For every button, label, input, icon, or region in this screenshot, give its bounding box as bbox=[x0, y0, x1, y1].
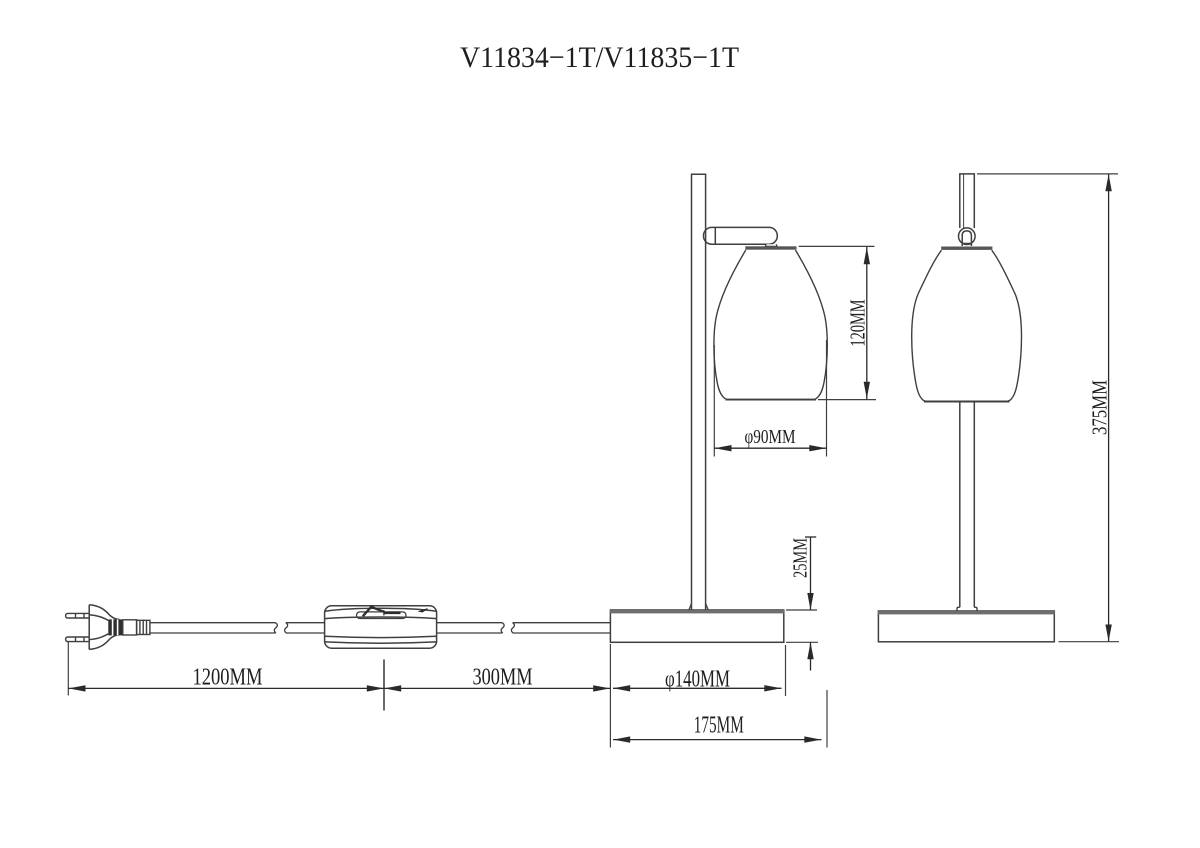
svg-text:120MM: 120MM bbox=[846, 299, 870, 346]
svg-text:φ90MM: φ90MM bbox=[745, 426, 796, 448]
svg-text:300MM: 300MM bbox=[473, 664, 533, 690]
svg-text:φ140MM: φ140MM bbox=[665, 666, 730, 692]
svg-text:V11834−1T/V11835−1T: V11834−1T/V11835−1T bbox=[460, 41, 739, 74]
svg-text:375MM: 375MM bbox=[1088, 380, 1112, 435]
svg-text:175MM: 175MM bbox=[694, 713, 744, 739]
svg-text:1200MM: 1200MM bbox=[193, 664, 263, 690]
svg-text:25MM: 25MM bbox=[790, 538, 812, 578]
